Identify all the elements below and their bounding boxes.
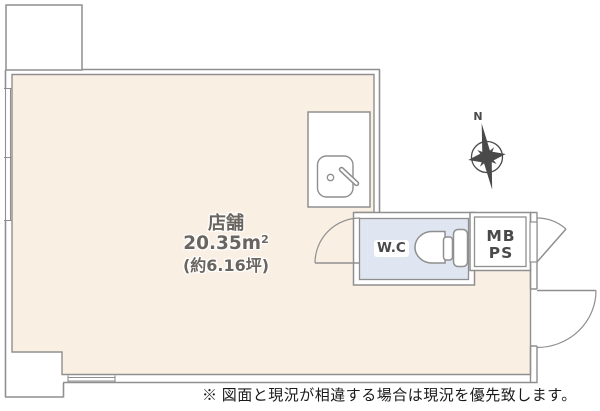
disclaimer-note: ※ 図面と現況が相違する場合は現況を優先致します。 <box>202 384 577 405</box>
upper-left-structure-outline <box>6 5 82 70</box>
entrance-door-arc <box>537 291 596 348</box>
utility-door-panel <box>530 222 537 262</box>
toilet-bowl <box>415 232 445 264</box>
wc-label: W.C <box>374 240 409 257</box>
sink-area <box>308 112 370 207</box>
utility-label: MB PS <box>477 228 525 261</box>
compass-north-label: N <box>468 110 488 123</box>
room-area: 20.35m2 <box>146 234 306 256</box>
area-unit-superscript: 2 <box>261 233 269 246</box>
room-name: 店舗 <box>146 214 306 234</box>
toilet-tank <box>454 230 468 267</box>
utility-label-mb: MB <box>477 228 525 245</box>
sink-icon <box>318 156 357 197</box>
wc-room <box>354 213 475 286</box>
compass-star-main <box>463 120 511 192</box>
utility-door-arc <box>537 218 566 262</box>
toilet-seat-hinge <box>444 237 453 260</box>
floor-plan-page: N 店舗 20.35m2 (約6.16坪) W.C MB PS ※ 図面と現況が… <box>0 0 600 411</box>
utility-label-ps: PS <box>477 245 525 262</box>
floor-plan-drawing <box>0 0 600 411</box>
compass-rose-icon <box>463 120 511 192</box>
room-area-tsubo: (約6.16坪) <box>146 256 306 275</box>
toilet-icon <box>415 230 468 267</box>
outer-wall-notch <box>5 383 64 398</box>
room-label: 店舗 20.35m2 (約6.16坪) <box>146 214 306 275</box>
left-window-icon <box>4 88 12 221</box>
right-wall-lower <box>531 346 538 383</box>
